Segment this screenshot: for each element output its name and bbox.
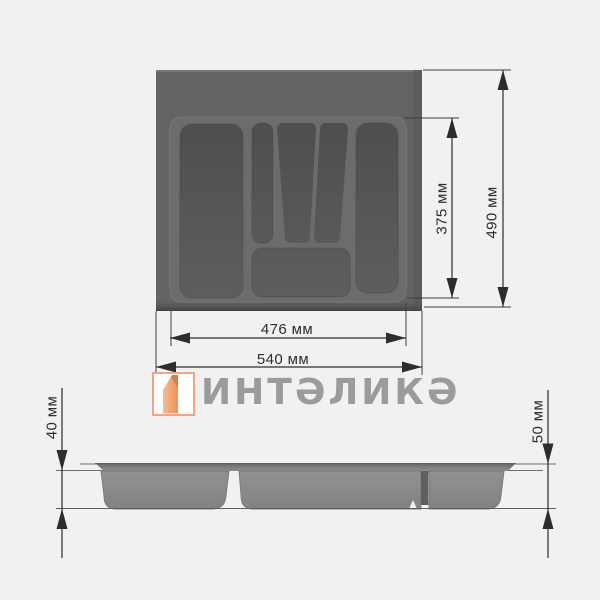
tray-blank-top-highlight (156, 70, 422, 72)
dim-label-inner-width: 476 мм (247, 321, 327, 338)
side-divider-dark (421, 471, 429, 505)
slot-taper-b (320, 129, 343, 238)
side-tub-middle (239, 471, 421, 509)
top-view (156, 70, 422, 311)
side-view (56, 463, 556, 509)
drawing-canvas: 375 мм 490 мм 476 мм 540 мм 40 мм 50 мм … (0, 0, 600, 600)
dim-label-outer-depth: 490 мм (484, 178, 501, 248)
dim-label-outer-width: 540 мм (243, 351, 323, 368)
dim-label-total-height: 50 мм (530, 392, 547, 452)
dim-label-tub-height: 40 мм (44, 388, 61, 448)
brand-logo-icon (152, 372, 195, 416)
tray-drawing-svg (0, 0, 600, 600)
slot-narrow (252, 123, 273, 243)
side-tub-left (101, 471, 229, 509)
dim-label-inner-depth: 375 мм (434, 174, 451, 244)
tray-blank-right-shade (413, 70, 422, 311)
brand-logo-text: ИНТƏЛИКƏ (201, 376, 461, 410)
slot-taper-a (283, 129, 311, 238)
compartment-left (180, 124, 243, 298)
side-flange (95, 463, 516, 471)
compartment-right (356, 123, 398, 293)
side-tub-right (429, 471, 504, 509)
compartment-bottom-wide (252, 248, 350, 297)
